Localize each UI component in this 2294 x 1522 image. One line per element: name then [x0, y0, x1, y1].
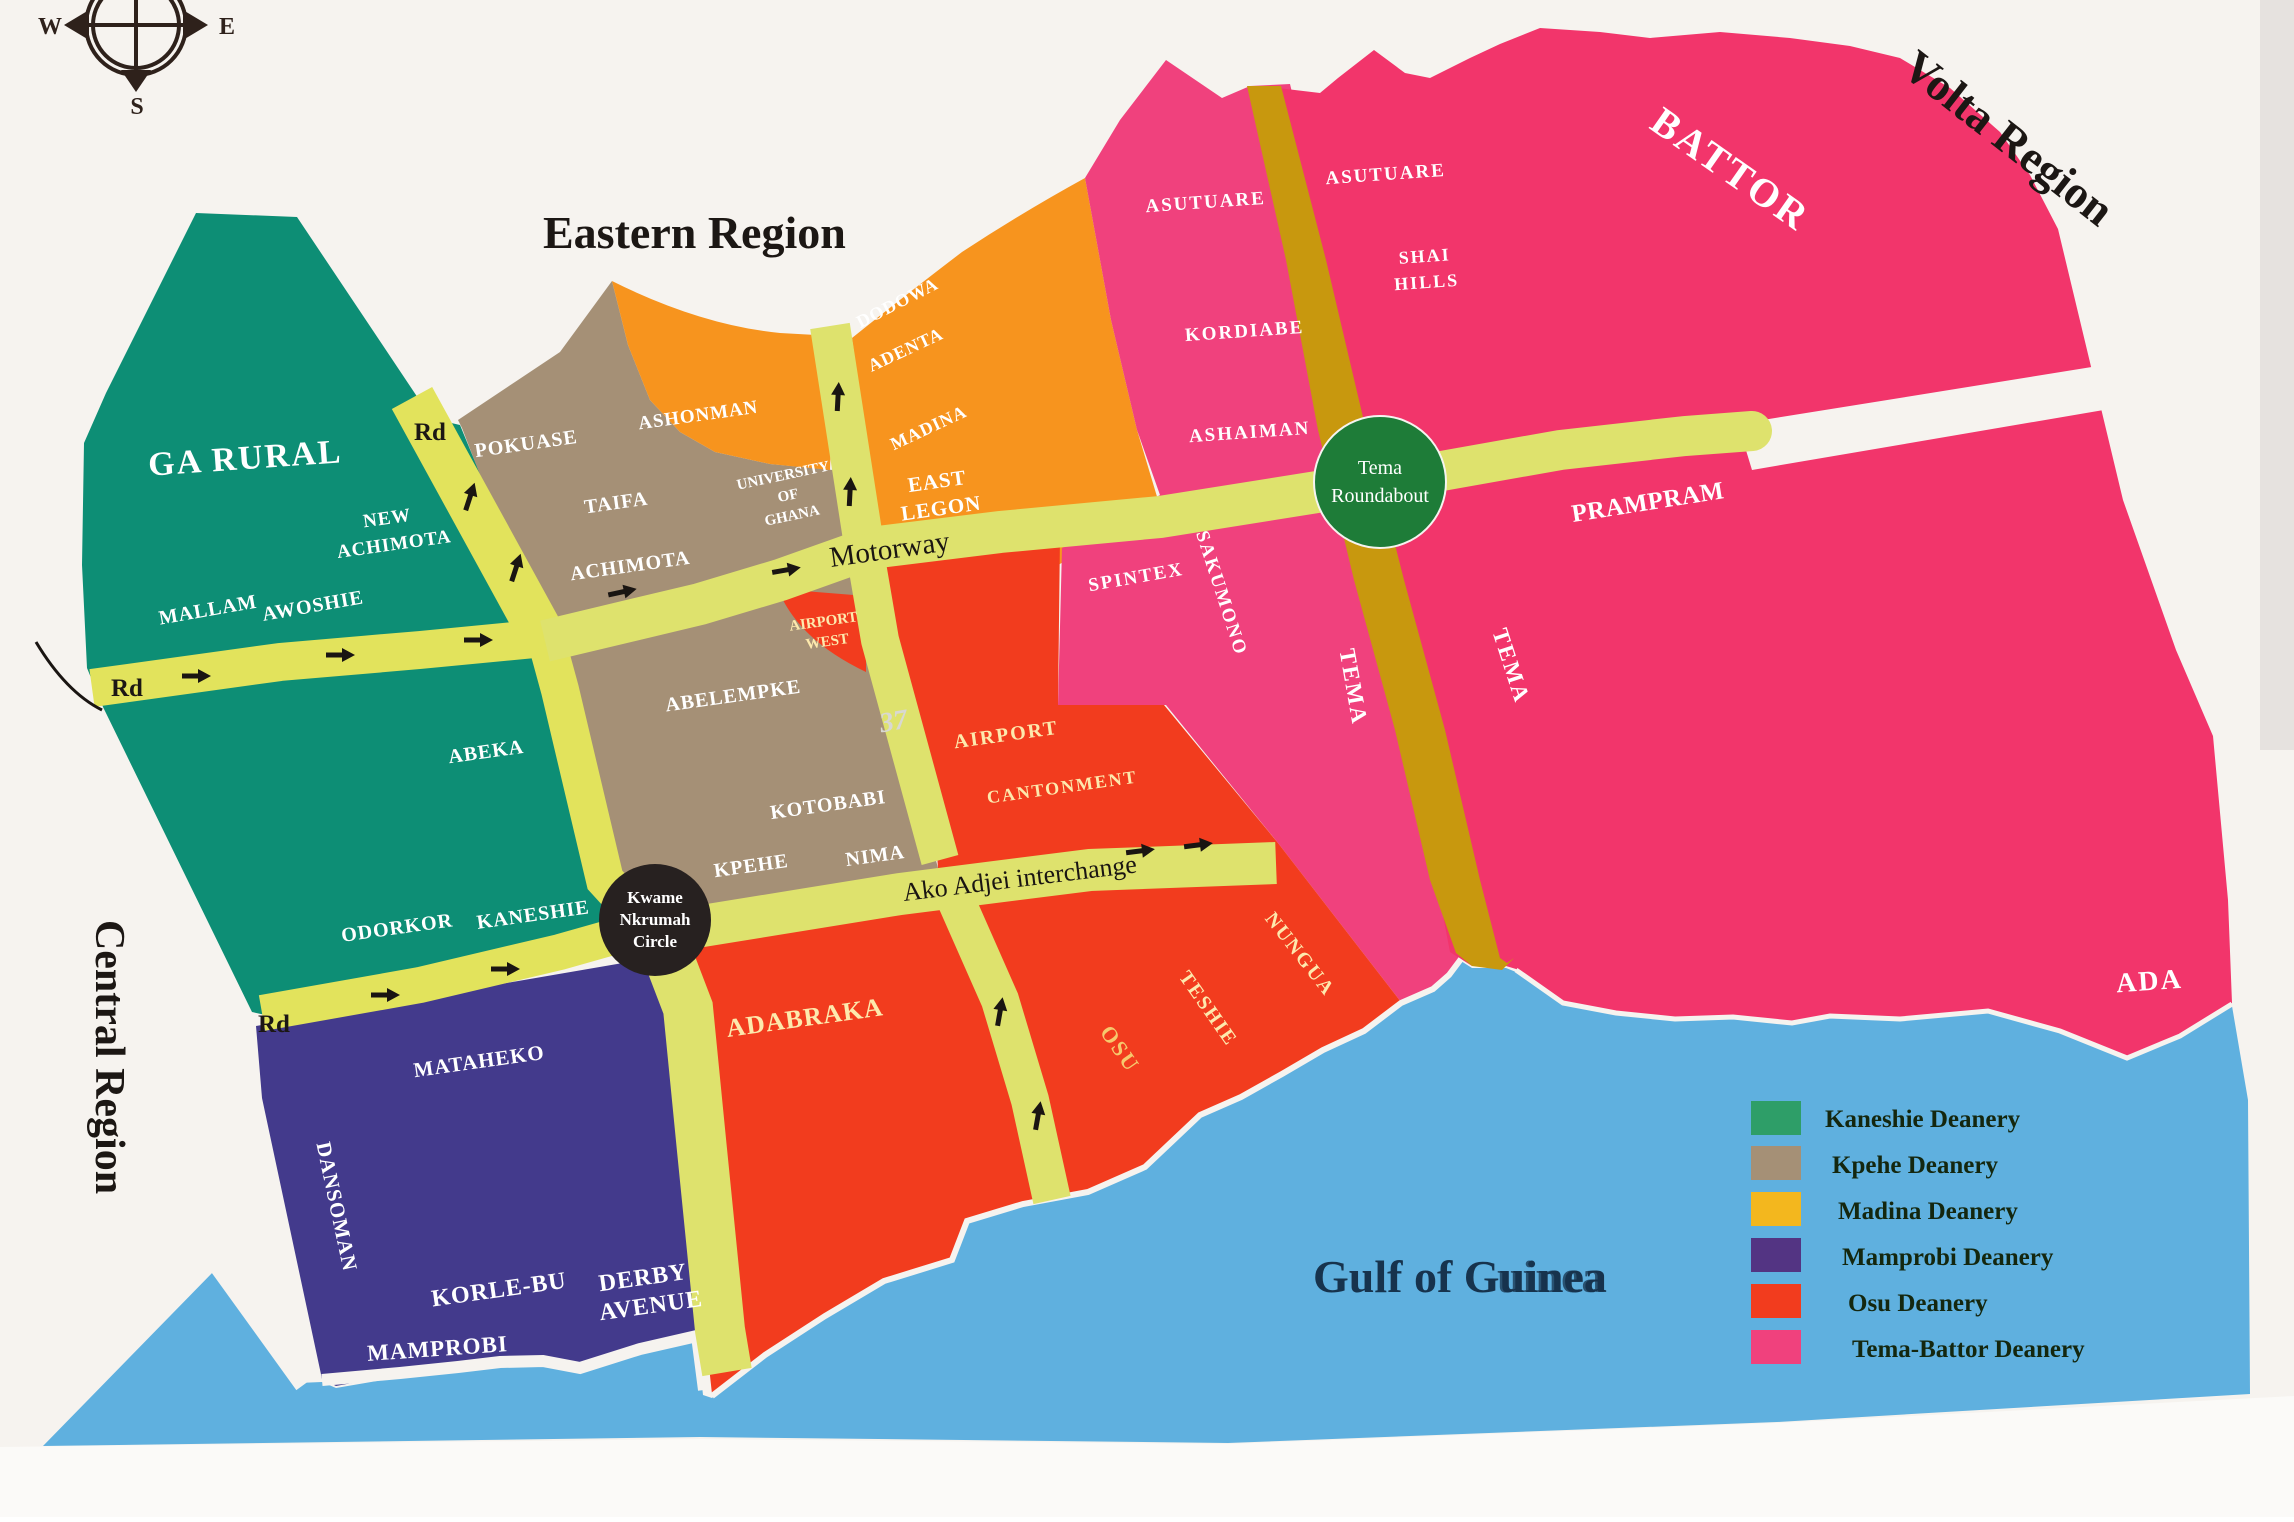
svg-text:SHAI: SHAI — [1398, 244, 1451, 268]
svg-text:Central Region: Central Region — [86, 920, 132, 1194]
svg-text:Nkrumah: Nkrumah — [620, 910, 691, 929]
svg-text:S: S — [130, 94, 143, 120]
svg-text:Kwame: Kwame — [627, 888, 683, 907]
svg-text:uinea: uinea — [1497, 1251, 1604, 1302]
svg-text:Rd: Rd — [111, 675, 143, 702]
svg-text:Rd: Rd — [258, 1011, 290, 1038]
svg-text:E: E — [219, 14, 235, 40]
svg-text:Mamprobi Deanery: Mamprobi Deanery — [1842, 1244, 2054, 1271]
svg-text:Tema: Tema — [1358, 457, 1402, 479]
svg-text:ADA: ADA — [2115, 964, 2184, 1000]
svg-text:Madina Deanery: Madina Deanery — [1838, 1198, 2018, 1225]
svg-text:Circle: Circle — [633, 932, 678, 951]
svg-text:Tema-Battor Deanery: Tema-Battor Deanery — [1852, 1336, 2085, 1363]
svg-text:Roundabout: Roundabout — [1331, 485, 1429, 507]
svg-text:Kaneshie Deanery: Kaneshie Deanery — [1825, 1106, 2021, 1133]
svg-text:Eastern Region: Eastern Region — [543, 207, 846, 258]
svg-text:Rd: Rd — [414, 419, 446, 446]
svg-text:Kpehe Deanery: Kpehe Deanery — [1832, 1152, 1998, 1179]
svg-text:Osu Deanery: Osu Deanery — [1848, 1290, 1988, 1317]
svg-text:W: W — [38, 14, 62, 40]
